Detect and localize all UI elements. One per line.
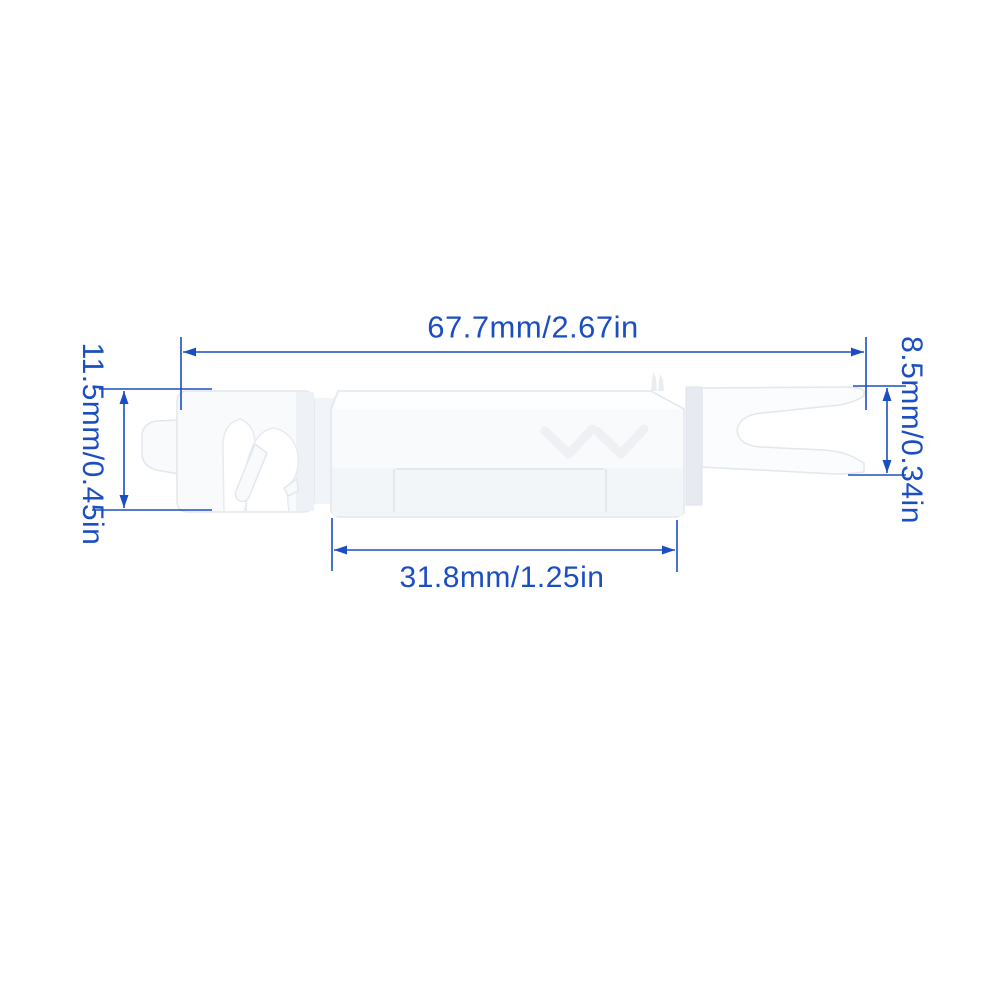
product-dimension-image: 67.7mm/2.67in 11.5mm/0.45in 8.5mm/0.34in… [0,0,1000,1000]
left-tab-shape [142,420,179,474]
body-top-face [333,392,681,409]
arrowhead [120,391,129,404]
diagram-canvas [0,0,1000,1000]
arrowhead [883,388,892,401]
arrowhead [120,495,129,508]
dimension-label-bottom: 31.8mm/1.25in [400,563,605,593]
fork-shape [702,387,864,474]
body-flange-shade [332,468,683,516]
arrowhead [851,348,864,357]
fork-ridge-shape [686,387,702,505]
arrowhead [662,546,675,555]
dimension-label-right: 8.5mm/0.34in [896,336,926,524]
body-pin-shape [651,372,664,391]
dimension-label-top: 67.7mm/2.67in [427,312,639,343]
clip-part-illustration [142,372,864,517]
clip-head-shading [296,392,314,511]
arrowhead [334,546,347,555]
dimension-label-left: 11.5mm/0.45in [77,343,107,546]
arrowhead [883,460,892,473]
arrowhead [183,348,196,357]
